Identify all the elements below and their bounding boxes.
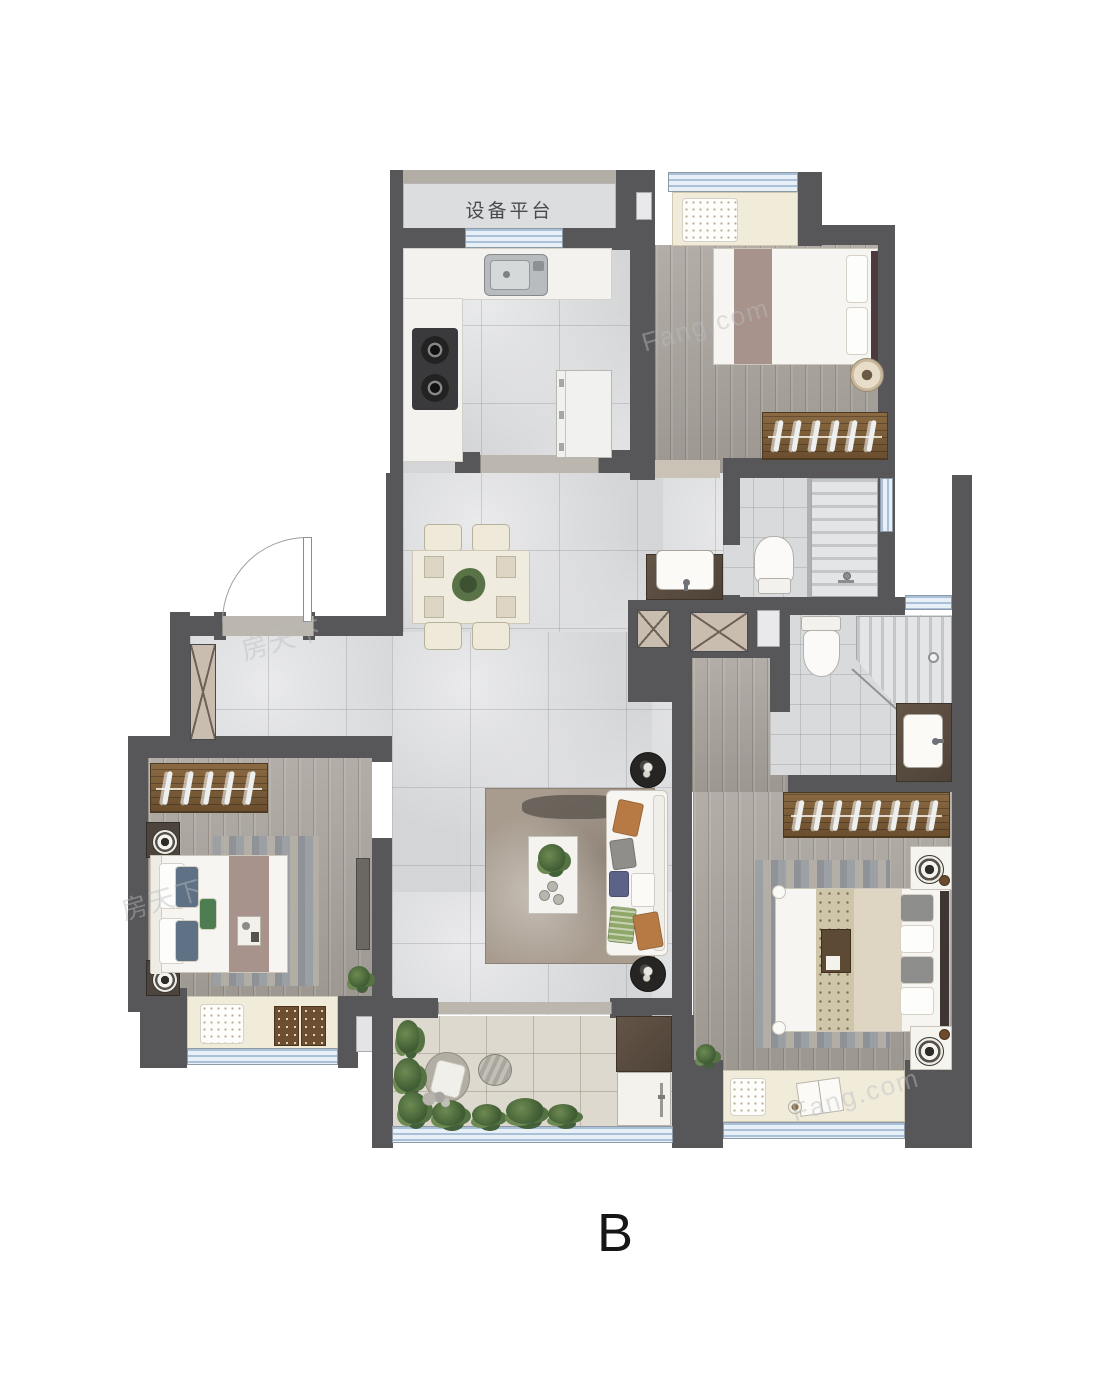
bay-seat-cushions [274, 1006, 326, 1046]
plant-icon [538, 844, 566, 872]
bedroom3-right-wall [372, 736, 392, 762]
cup-icon [788, 1100, 802, 1114]
plant-icon [506, 1098, 544, 1124]
balcony-door-wall [392, 998, 438, 1018]
foyer-floor [190, 632, 392, 738]
master-bay-left-wall [693, 1060, 723, 1148]
balcony-door-threshold [438, 1002, 612, 1014]
dining-chair-icon [472, 524, 510, 552]
shaft-cell [757, 610, 780, 647]
open-book-icon [796, 1077, 844, 1117]
bay-seat-pillow [730, 1078, 766, 1116]
place-setting-icon [424, 556, 444, 578]
master-washbasin-icon [903, 714, 943, 768]
master-bay-right-block [905, 1060, 972, 1148]
wall [390, 228, 465, 250]
bedroom3-right-wall [372, 838, 392, 1018]
plant-icon [472, 1104, 502, 1126]
wardrobe-hangers-icon [784, 793, 949, 837]
fridge-icon [556, 370, 612, 458]
entry-door-swing-icon [222, 537, 307, 622]
bay-seat-pillow [200, 1004, 244, 1044]
bedroom2-window [668, 172, 798, 192]
wardrobe-hangers-icon [763, 413, 887, 459]
shower-faucet-icon [838, 572, 854, 588]
balcony-right-wall [672, 1015, 694, 1148]
bedroom3-nightstand-icon [146, 822, 180, 858]
kitchen-window [465, 228, 563, 248]
washing-machine-icon [617, 1072, 671, 1126]
entry-wall [312, 616, 392, 636]
bedroom2-wardrobe-icon [762, 412, 888, 460]
right-exterior-column [952, 475, 972, 792]
living-corridor-wall [672, 700, 692, 1015]
wall [798, 172, 822, 246]
side-table-icon [630, 752, 666, 788]
bay-wall-column [140, 988, 187, 1068]
place-setting-icon [424, 596, 444, 618]
shower-divider [807, 478, 811, 597]
master-right-wall [952, 792, 972, 1072]
balcony-left-wall [372, 1008, 393, 1148]
shoe-cabinet-icon [190, 644, 216, 740]
place-setting-icon [496, 556, 516, 578]
plant-icon [348, 966, 370, 988]
bathroom1-left-wall [723, 458, 740, 545]
tv-console-icon [356, 858, 370, 950]
plant-icon [696, 1044, 716, 1064]
master-shower-icon [856, 616, 952, 706]
coffee-table-icon [528, 836, 578, 914]
bedroom3-wardrobe-icon [150, 763, 268, 813]
place-setting-icon [496, 596, 516, 618]
bay-seat-pillow [682, 198, 738, 242]
balcony-window [392, 1126, 673, 1143]
laundry-counter [616, 1016, 672, 1072]
shaft-cell [636, 192, 652, 220]
stone-table-icon [478, 1054, 512, 1086]
hall-washbasin-icon [656, 550, 714, 590]
bedroom3-left-wall [128, 736, 148, 1012]
bedroom3-bed-icon [150, 855, 288, 973]
nightstand-lamp-icon [915, 1037, 944, 1066]
master-nightstand-icon [910, 846, 952, 890]
shaft-x-icon [637, 610, 670, 648]
bedroom3-top-wall [128, 736, 392, 758]
plant-icon [548, 1104, 578, 1124]
centerpiece-plant-icon [452, 568, 488, 604]
master-bed-icon [775, 888, 950, 1032]
side-table-icon [630, 956, 666, 992]
master-wardrobe-icon [783, 792, 950, 838]
stove-icon [412, 328, 458, 410]
floor-plan: Fang.com 房天下 Fang.com 房天下 设备平台 B [0, 0, 1115, 1400]
equipment-platform-label: 设备平台 [403, 196, 616, 223]
equipment-platform-top-wall [390, 170, 633, 183]
plant-icon [396, 1020, 420, 1054]
master-nightstand-icon [910, 1026, 952, 1070]
master-bay-window [723, 1122, 905, 1139]
pebbles-icon [420, 1090, 450, 1108]
kitchen-left-wall [390, 248, 403, 475]
unit-label: B [540, 1202, 690, 1264]
dining-chair-icon [424, 524, 462, 552]
wall [723, 458, 895, 478]
dining-chair-icon [424, 622, 462, 650]
nightstand-lamp-icon [152, 829, 178, 855]
bathroom1-window [880, 478, 893, 532]
shaft-x-icon [690, 612, 748, 652]
kitchen-sink-icon [484, 254, 548, 296]
bedroom2-door-threshold [655, 460, 720, 478]
bed-tray-icon [821, 929, 851, 973]
plant-icon [394, 1058, 422, 1092]
entry-door-leaf [303, 537, 312, 622]
bedroom2-side-table-icon [850, 358, 884, 392]
bedroom2-bed-icon [713, 248, 878, 365]
bedroom3-bay-window [187, 1048, 338, 1065]
sofa-icon [606, 790, 668, 956]
dining-left-wall [386, 473, 403, 636]
wardrobe-hangers-icon [151, 764, 267, 812]
dining-chair-icon [472, 622, 510, 650]
master-bath-window [905, 595, 952, 610]
